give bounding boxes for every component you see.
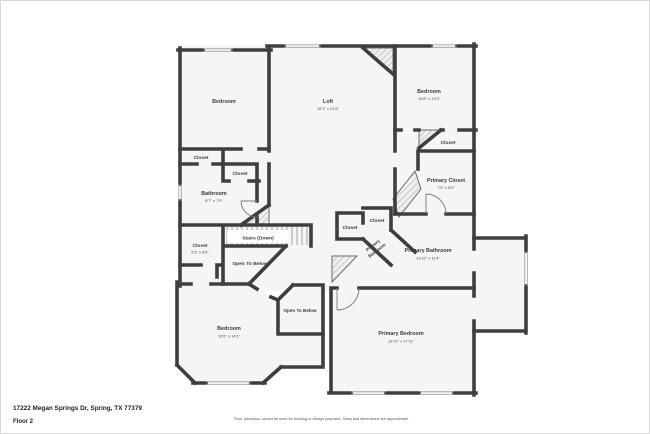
label-bedroom-top-left: Bedroom: [212, 99, 236, 105]
label-open-below-2: Open To Below: [283, 308, 317, 313]
label-open-below-1: Open To Below: [232, 261, 267, 267]
floor-plan-svg: Bedroom Loft 16'1" x 21'6" Bedroom 10'8"…: [1, 1, 650, 434]
label-closet-mid-2: Closet: [370, 218, 385, 224]
dims-loft: 16'1" x 21'6": [317, 106, 340, 111]
dims-bedroom-top-right: 10'8" x 13'3": [418, 96, 441, 101]
label-bathroom: Bathroom: [201, 191, 227, 197]
footer-disclaimer: Floor plans/tour cannot be used for buil…: [234, 417, 409, 421]
dims-primary-bedroom: 19'10" x 17'11": [388, 339, 415, 344]
dims-closet-hall: 5'3" x 6'6": [191, 250, 209, 255]
footer-address: 17222 Megan Springs Dr, Spring, TX 77379: [13, 405, 142, 412]
footer-floor-label: Floor 2: [13, 419, 34, 425]
footer: 17222 Megan Springs Dr, Spring, TX 77379…: [13, 405, 409, 425]
label-closet-hall: Closet: [193, 243, 208, 249]
label-stairs: Stairs (Down): [242, 236, 274, 242]
label-primary-bedroom: Primary Bedroom: [378, 331, 423, 337]
dims-bathroom: 8'7" x 7'9": [205, 198, 223, 203]
window-bay-bottom: [206, 382, 251, 385]
label-loft: Loft: [323, 99, 333, 105]
label-closet-left-1: Closet: [194, 155, 209, 161]
label-bedroom-bottom-left: Bedroom: [217, 326, 241, 332]
label-bedroom-top-right: Bedroom: [417, 89, 441, 95]
dims-primary-closet: 7'0" x 8'9": [437, 185, 455, 190]
dims-bedroom-bottom-left: 12'6" x 14'1": [218, 334, 241, 339]
label-primary-closet: Primary Closet: [427, 178, 465, 184]
dims-primary-bathroom: 13'10" x 11'4": [416, 256, 440, 261]
label-closet-top-right: Closet: [441, 140, 456, 146]
floor-right-bay: [474, 238, 526, 331]
floor-plan-page: Bedroom Loft 16'1" x 21'6" Bedroom 10'8"…: [0, 0, 650, 434]
label-closet-mid-1: Closet: [343, 225, 358, 231]
window-right-bay: [525, 251, 528, 286]
label-primary-bathroom: Primary Bathroom: [404, 248, 451, 254]
label-closet-left-2: Closet: [233, 171, 248, 177]
